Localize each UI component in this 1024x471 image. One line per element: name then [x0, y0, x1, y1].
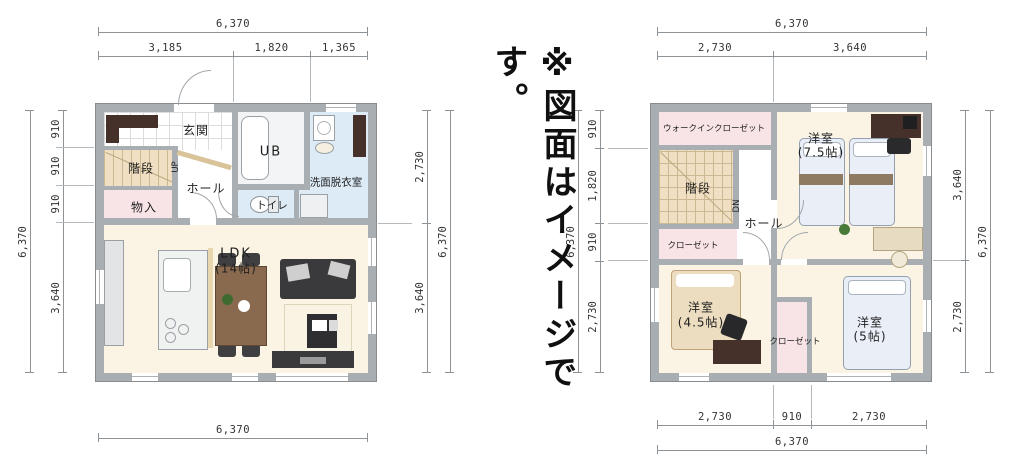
table-plant [222, 294, 233, 305]
dim-extension-line [773, 385, 774, 419]
table-plate [238, 300, 250, 312]
disclaimer-note: ※図面はイメージです。 [484, 44, 582, 454]
dim-value: 3,640 [773, 42, 927, 54]
bed-pillow [853, 142, 891, 157]
wall-stairs-hall [733, 150, 739, 224]
room-label-stairs-2f: 階段 [685, 180, 711, 197]
dim-2f-top-segments: 2,730 3,640 [657, 42, 927, 57]
entrance-door-arc [178, 70, 211, 105]
window [96, 270, 104, 304]
window [232, 373, 258, 381]
dim-1f-left-segments: 910 910 910 3,640 [49, 110, 64, 373]
dim-extension-line [378, 223, 412, 224]
dim-value: 3,640 [50, 282, 62, 314]
bed-blanket-band [799, 174, 843, 185]
wall-left-col-bedroom75 [771, 112, 777, 259]
room-label-ldk-size: (14帖) [215, 260, 257, 277]
dim-value: 1,820 [233, 42, 310, 54]
dim-value: 2,730 [414, 151, 426, 183]
dim-2f-bottom-total: 6,370 [657, 436, 927, 451]
door-opening-hall-ldk [190, 218, 216, 225]
dim-extension-line [608, 260, 648, 261]
window-sliding [276, 373, 348, 381]
room-label-genkan: 玄関 [183, 122, 209, 139]
dim-1f-top-total: 6,370 [98, 18, 368, 33]
dim-value: 910 [50, 157, 62, 176]
dim-value: 6,370 [437, 226, 449, 258]
dim-value: 2,730 [657, 411, 773, 423]
room-label-ub: UB [260, 145, 282, 160]
floorplan-1f: 玄関 階段 UP ホール 物入 UB 洗面脱衣室 トイレ LDK (14帖) [96, 104, 376, 381]
vanity-sink [300, 194, 328, 218]
dim-extension-line [608, 148, 648, 149]
shoe-cabinet-side [106, 115, 119, 143]
dim-value: 1,365 [310, 42, 368, 54]
room-label-stairs: 階段 [128, 160, 154, 177]
dim-value: 910 [50, 194, 62, 213]
washing-machine-door [317, 121, 331, 135]
room-label-closet-left: クローゼット [667, 239, 718, 251]
wall-stairs-closet [659, 224, 739, 229]
dim-value: 6,370 [98, 18, 368, 30]
window [368, 238, 376, 266]
dim-2f-right-total: 6,370 [976, 110, 991, 373]
dim-value: 2,730 [657, 42, 773, 54]
desk-chair [887, 138, 911, 154]
wall-upper-ldk [104, 218, 368, 225]
dim-value: 6,370 [98, 424, 368, 436]
room-label-storage: 物入 [131, 199, 157, 216]
floorplan-canvas: 玄関 階段 UP ホール 物入 UB 洗面脱衣室 トイレ LDK (14帖) [0, 0, 1024, 471]
window [923, 146, 931, 176]
dim-value: 910 [50, 119, 62, 138]
bed-blanket-band [849, 174, 893, 185]
dim-extension-line [233, 58, 234, 102]
dim-value: 910 [587, 120, 599, 139]
room-label-closet-mid: クローゼット [769, 335, 820, 347]
plant [839, 224, 850, 235]
wall-toilet-vanity [294, 190, 299, 218]
wall-stairs-hall [172, 146, 178, 218]
window [679, 373, 709, 381]
washroom-cabinet [353, 115, 366, 157]
dim-value: 2,730 [952, 301, 964, 333]
window [827, 373, 891, 381]
tv-board-center [300, 357, 326, 364]
room-label-bedroom5-size: (5帖) [854, 328, 887, 345]
room-label-up: UP [171, 161, 181, 172]
dim-2f-bottom-segments: 2,730 910 2,730 [657, 411, 927, 426]
dim-extension-line [811, 385, 812, 419]
room-label-bedroom75-size: (7.5帖) [798, 144, 844, 161]
dresser-desk [873, 227, 923, 251]
desk [713, 340, 761, 364]
floorplan-2f: ウォークインクローゼット 階段 DN ホール クローゼット 洋室 (7.5帖) … [651, 104, 931, 381]
dim-extension-line [608, 223, 648, 224]
entrance-door-opening [174, 104, 214, 112]
dim-value: 3,640 [414, 282, 426, 314]
dim-value: 6,370 [657, 436, 927, 448]
window [923, 300, 931, 332]
dim-value: 6,370 [17, 226, 29, 258]
coffee-table-book [312, 320, 327, 331]
dim-extension-line [56, 147, 94, 148]
window [811, 104, 847, 112]
dim-extension-line [773, 58, 774, 102]
room-label-washroom: 洗面脱衣室 [310, 175, 363, 190]
dim-value: 3,185 [98, 42, 233, 54]
laundry-basket [315, 142, 334, 154]
wall-closet-mid-top [777, 297, 812, 302]
wall-stairs-storage [104, 186, 176, 190]
bedroom45-door-arc [743, 232, 770, 260]
wall-slanted-entry [177, 150, 232, 170]
dim-extension-line [310, 58, 311, 102]
dim-value: 910 [587, 233, 599, 252]
bed-pillow [848, 280, 906, 295]
coffee-table-book [329, 320, 338, 331]
bed-pillow [676, 274, 734, 287]
dim-2f-left-segments: 910 1,820 910 2,730 [586, 110, 601, 373]
dim-value: 910 [773, 411, 811, 423]
dim-value: 2,730 [587, 301, 599, 333]
dim-value: 1,820 [587, 170, 599, 202]
room-label-bedroom45-size: (4.5帖) [678, 314, 724, 331]
window [651, 288, 659, 322]
dim-extension-line [56, 185, 94, 186]
wall-genkan-stairs [104, 146, 178, 150]
dim-1f-bottom-total: 6,370 [98, 424, 368, 439]
kitchen-wall-counter [104, 240, 124, 346]
dim-value: 3,640 [952, 169, 964, 201]
kitchen-counter-edge [208, 248, 213, 348]
room-label-toilet: トイレ [256, 198, 288, 213]
wall-ub-washroom [304, 112, 310, 184]
kitchen-sink [163, 258, 191, 292]
stove-burner [165, 332, 176, 343]
window [368, 302, 376, 334]
room-label-dn: DN [732, 200, 742, 213]
dim-extension-line [56, 222, 94, 223]
stove-burner [178, 324, 189, 335]
dim-1f-right-total: 6,370 [436, 110, 451, 373]
dim-2f-right-segments: 3,640 2,730 [951, 110, 966, 373]
wall-wic-stairs [659, 145, 771, 150]
wall-bedroom45-closet [771, 265, 777, 373]
dim-2f-top-total: 6,370 [657, 18, 927, 33]
room-bedroom5-entry [777, 265, 812, 297]
dim-1f-left-total: 6,370 [16, 110, 31, 373]
room-label-wic: ウォークインクローゼット [663, 122, 765, 134]
window [132, 373, 158, 381]
dim-value: 6,370 [657, 18, 927, 30]
dim-value: 6,370 [977, 226, 989, 258]
dim-1f-top-segments: 3,185 1,820 1,365 [98, 42, 368, 57]
stool [891, 251, 908, 268]
room-label-hall: ホール [186, 180, 225, 197]
dim-1f-right-segments: 2,730 3,640 [413, 110, 428, 373]
dim-value: 2,730 [811, 411, 927, 423]
room-label-hall-2f: ホール [744, 215, 783, 232]
dim-extension-line [933, 260, 961, 261]
window [326, 104, 356, 112]
desk-monitor [903, 116, 917, 129]
stove-burner [165, 318, 176, 329]
